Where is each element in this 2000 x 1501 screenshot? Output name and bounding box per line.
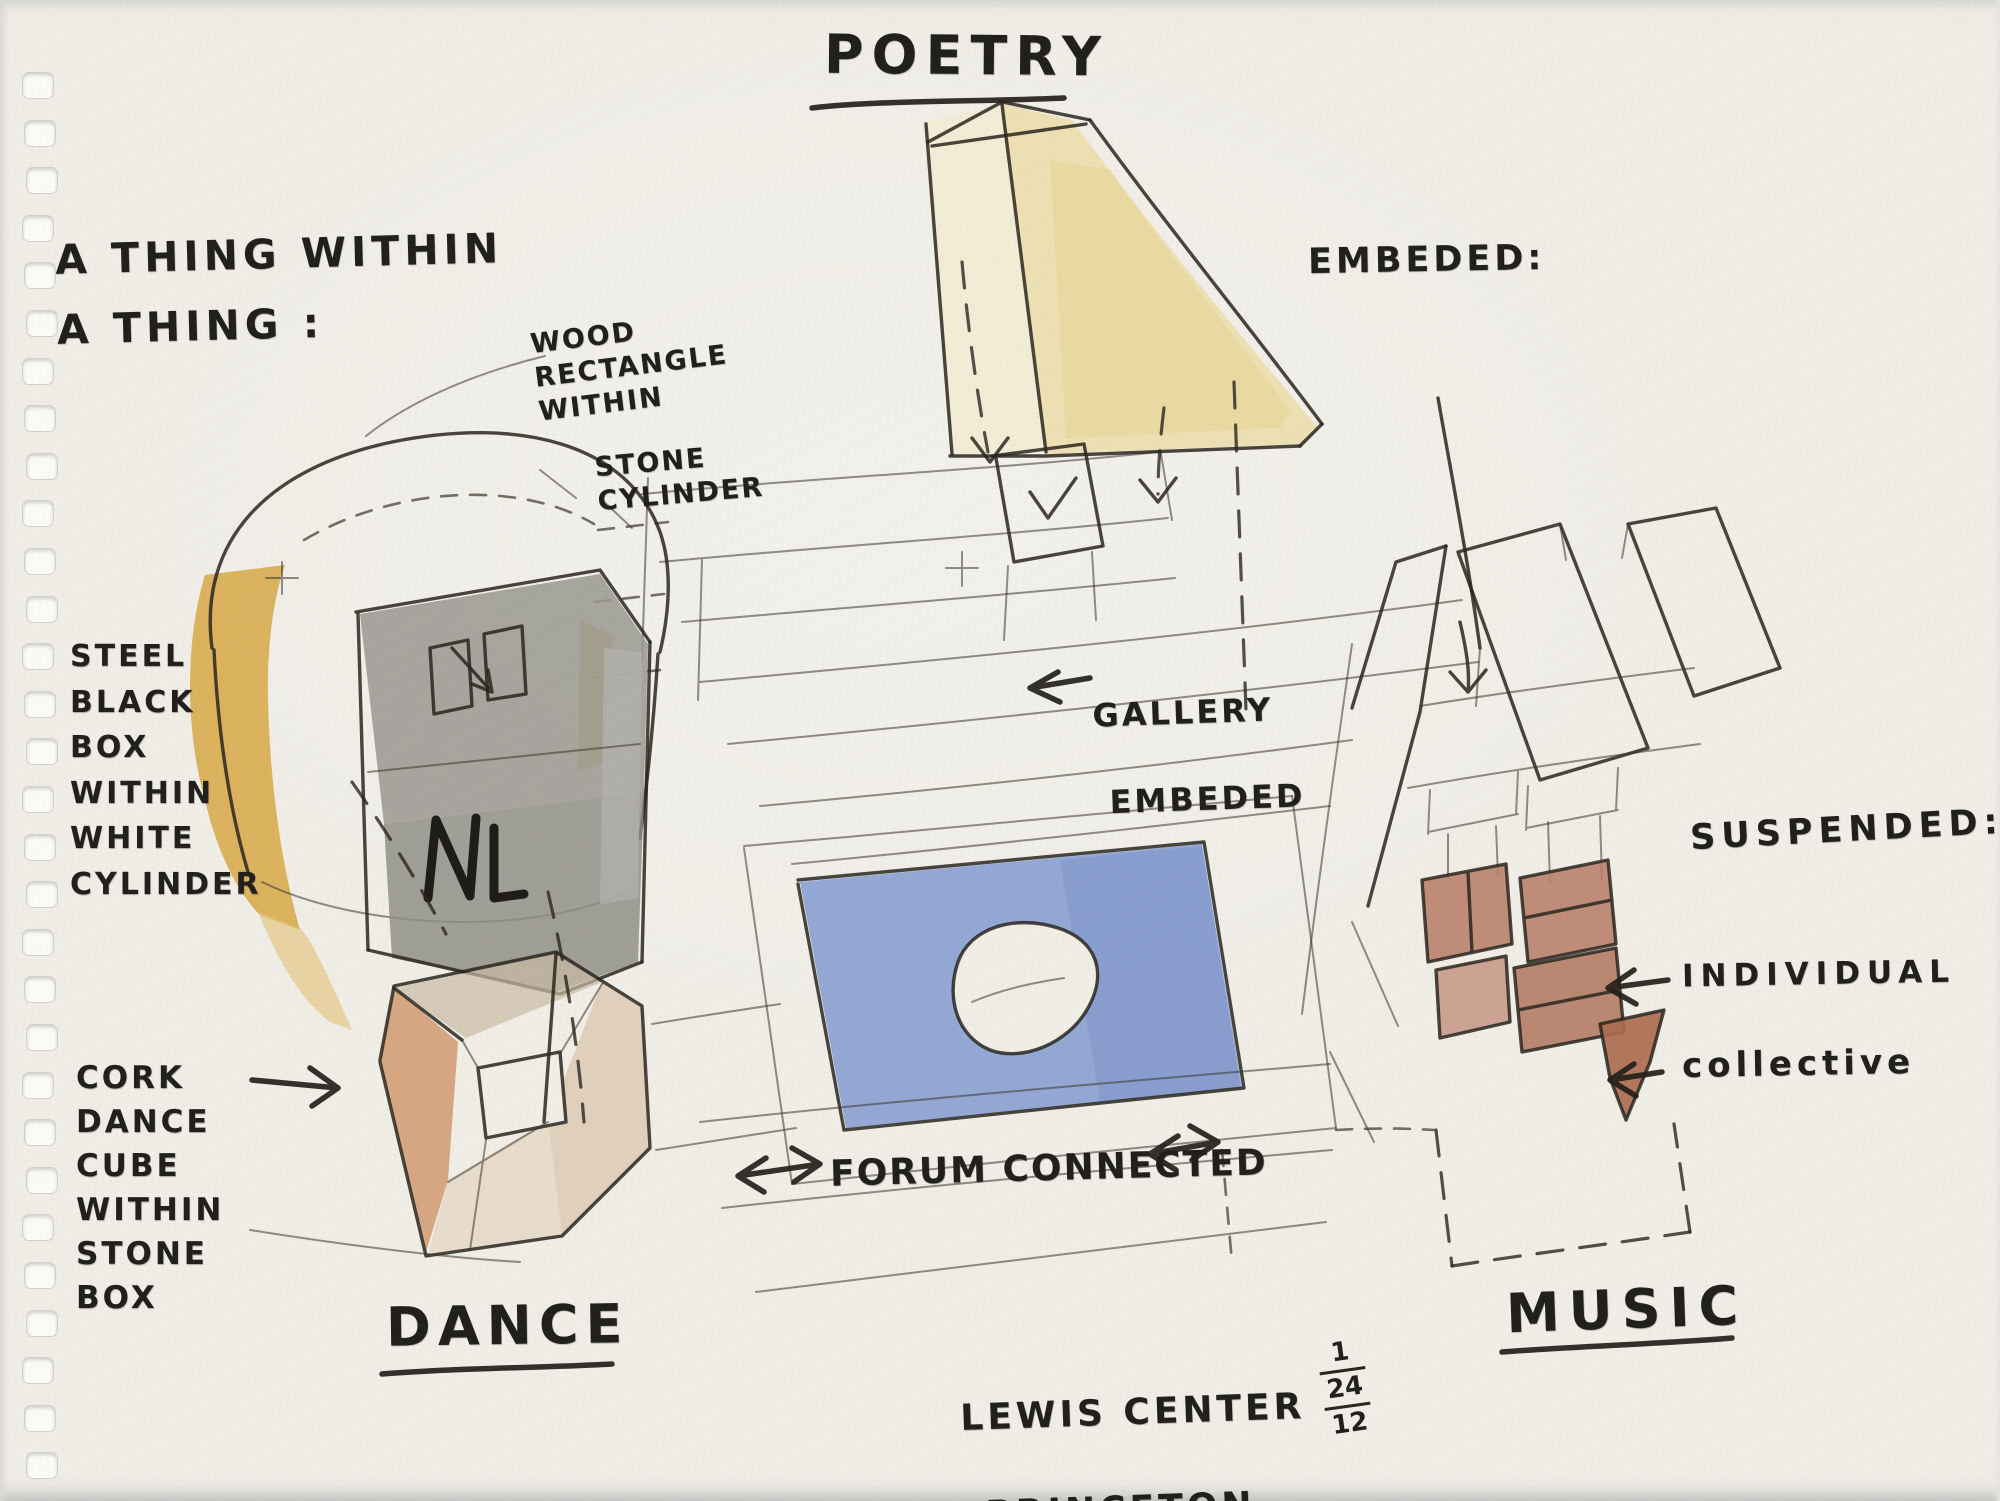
gallery-label: GALLERY EMBEDED <box>1090 644 1307 867</box>
gallery-arrow <box>1030 672 1090 702</box>
poetry-title: POETRY <box>824 23 1109 88</box>
date-year: 12 <box>1325 1405 1375 1444</box>
poetry-tower <box>924 102 1322 710</box>
cork-arrow <box>252 1068 338 1106</box>
steel-black-box <box>356 570 650 994</box>
sketchbook-page: POETRY A THING WITHIN A THING : WOOD REC… <box>0 0 2000 1501</box>
gallery-label-line2: EMBEDED <box>1109 774 1306 824</box>
collective-label: collective <box>1682 1042 1916 1086</box>
concept-note: A THING WITHIN A THING : <box>54 214 506 365</box>
dance-underline <box>382 1364 612 1374</box>
music-building <box>1302 508 1780 1266</box>
embedded-label: EMBEDED: <box>1308 238 1546 282</box>
music-title: MUSIC <box>1505 1274 1748 1345</box>
forum-arrow-left <box>738 1148 820 1192</box>
dance-cube <box>380 952 796 1256</box>
gallery-label-line1: GALLERY <box>1092 688 1303 738</box>
individual-label: INDIVIDUAL <box>1682 954 1957 995</box>
cork-annotation: CORK DANCE CUBE WITHIN STONE BOX <box>76 1056 224 1320</box>
credit-line2: PRINCETON <box>985 1480 1310 1501</box>
credit-line1: LEWIS CENTER <box>960 1383 1307 1444</box>
music-down-arrow <box>1450 622 1486 692</box>
dance-title: DANCE <box>386 1292 630 1358</box>
credit-block: LEWIS CENTER PRINCETON <box>958 1334 1311 1501</box>
steel-annotation: STEEL BLACK BOX WITHIN WHITE CYLINDER <box>70 634 262 908</box>
